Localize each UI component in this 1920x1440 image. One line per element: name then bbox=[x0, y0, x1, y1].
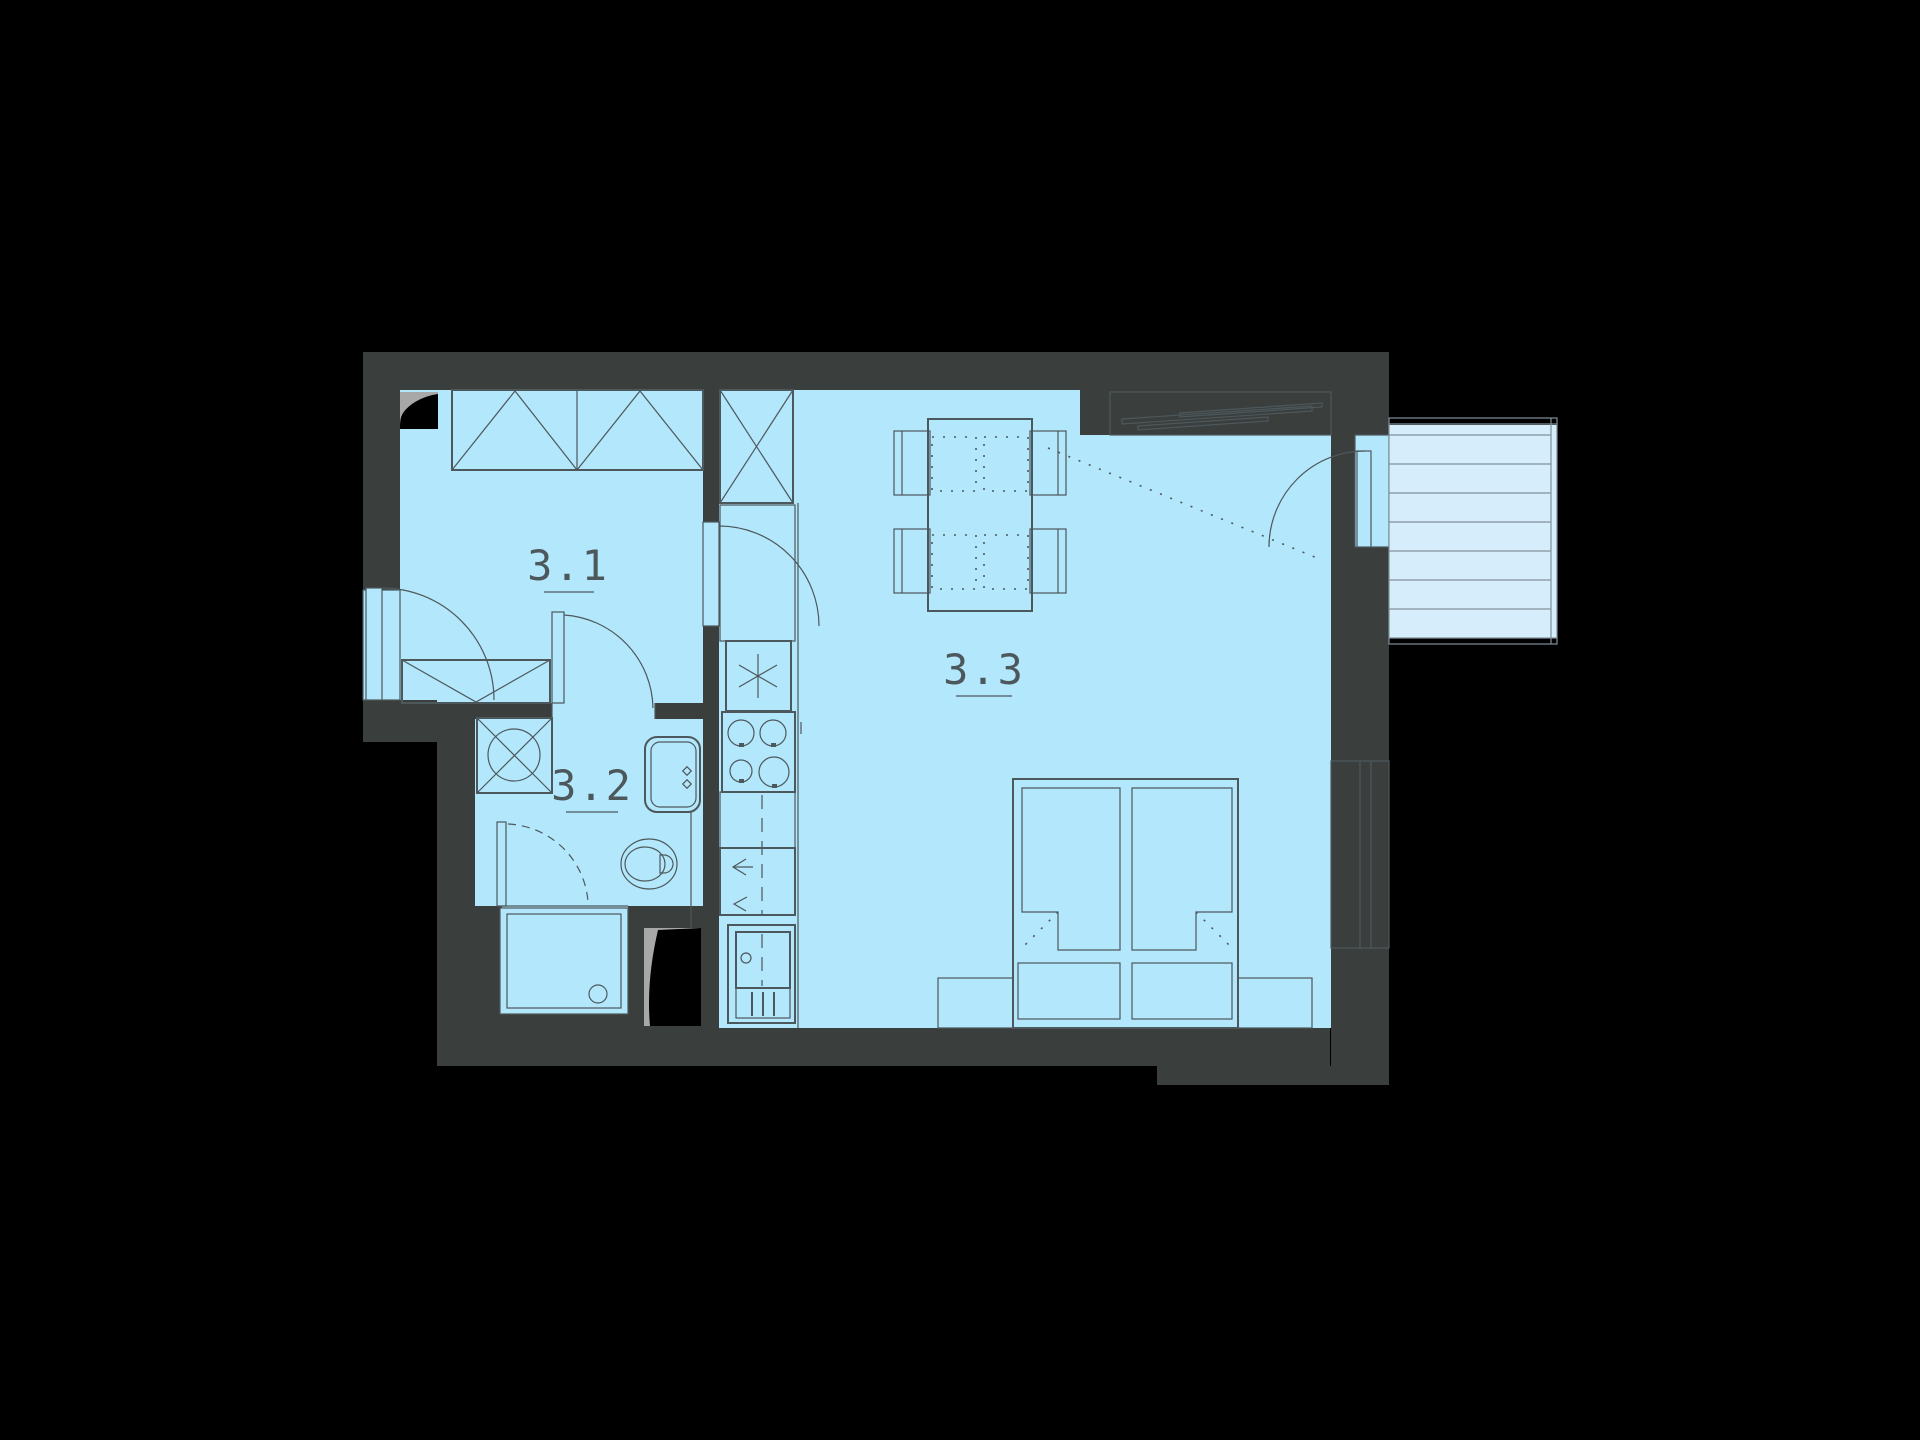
bathroom-door-opening bbox=[552, 703, 655, 719]
wall-left-step bbox=[363, 700, 437, 744]
shower-tray-icon bbox=[500, 908, 628, 1014]
wall-shower-bottom bbox=[500, 1014, 628, 1030]
wall-left-lower bbox=[437, 703, 475, 1066]
shaft-top-left bbox=[400, 392, 438, 429]
wall-shower-left bbox=[475, 906, 502, 1028]
room-label-bathroom: 3.2 bbox=[551, 761, 633, 810]
floor-plan-canvas: 3.1 bbox=[0, 0, 1920, 1440]
room-label-hallway: 3.1 bbox=[527, 541, 609, 590]
wall-bottom bbox=[437, 1028, 1330, 1066]
exterior-notch bbox=[363, 742, 437, 1066]
balcony bbox=[1389, 418, 1557, 644]
balcony-floor bbox=[1389, 425, 1557, 638]
room-label-living: 3.3 bbox=[943, 645, 1025, 694]
wall-top bbox=[363, 352, 1389, 390]
shaft-bottom bbox=[644, 928, 701, 1026]
living-door-opening bbox=[703, 522, 719, 626]
floor-plan-svg: 3.1 bbox=[0, 0, 1920, 1440]
wall-partition bbox=[703, 390, 719, 1028]
